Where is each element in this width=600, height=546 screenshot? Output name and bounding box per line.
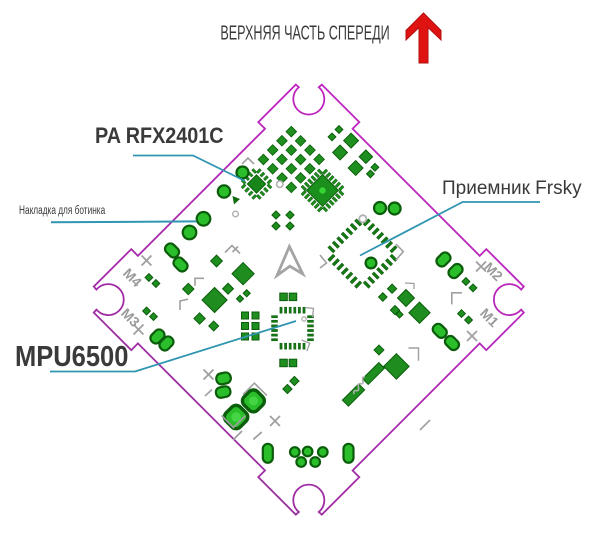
svg-text:Накладка для ботинка: Накладка для ботинка: [19, 204, 105, 218]
svg-text:PA RFX2401C: PA RFX2401C: [95, 124, 224, 148]
svg-text:MPU6500: MPU6500: [15, 339, 128, 372]
svg-text:М4: М4: [120, 265, 145, 290]
svg-text:Приемник Frsky: Приемник Frsky: [442, 178, 582, 199]
svg-text:ВЕРХНЯЯ ЧАСТЬ СПЕРЕДИ: ВЕРХНЯЯ ЧАСТЬ СПЕРЕДИ: [220, 22, 389, 45]
svg-text:М1: М1: [477, 305, 502, 330]
